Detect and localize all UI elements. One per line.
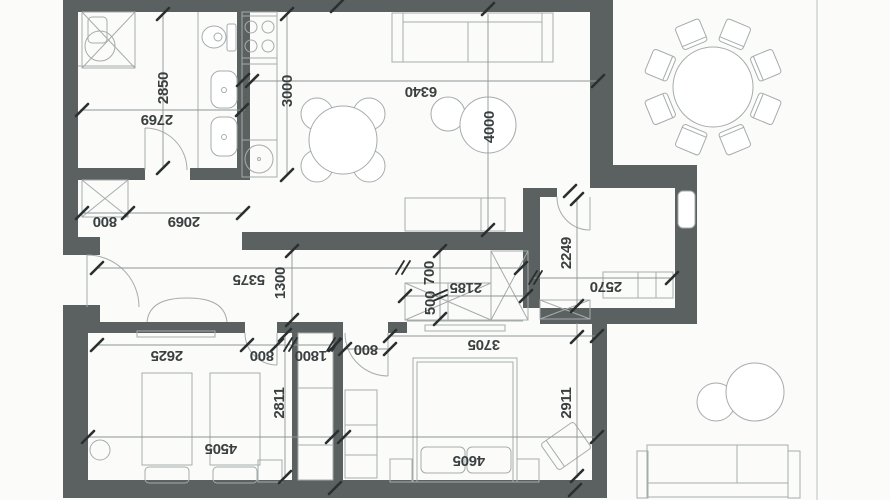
dimension-label-bath-height: 2850: [155, 72, 172, 104]
wall-bath-bottom-left: [63, 168, 145, 180]
washing-machine-icon: [82, 12, 135, 68]
patio-table-top: [673, 47, 753, 127]
coffee-tables: [697, 363, 784, 421]
patio-chair-icon: [644, 49, 676, 82]
dimension-label-wardrobe-width: 2185: [450, 279, 482, 296]
hallway: [82, 180, 528, 337]
radiator: [425, 325, 505, 331]
dimension-label-hall-wardrobe: 800: [93, 213, 117, 230]
wall-master-right: [592, 322, 607, 498]
toilet-icon: [202, 24, 236, 51]
wall-office-right: [675, 165, 697, 324]
floor-plan-drawing: 2850276930006340400080020695375130070050…: [0, 0, 890, 500]
dimension-label-office-width: 2570: [590, 278, 622, 295]
wall-bath-bottom-right: [190, 168, 250, 180]
door-entrance: [87, 255, 139, 307]
sofa: [392, 13, 553, 62]
dimension-label-office-depth: 2249: [558, 237, 575, 269]
patio-chair-icon: [750, 92, 782, 125]
bathroom-partition-line: [78, 12, 198, 168]
wall-radiator: [678, 191, 695, 228]
single-bed: [142, 373, 192, 483]
dimension-label-closet-width: 1800: [295, 347, 327, 364]
dimension-label-master-total-width: 4605: [453, 452, 485, 469]
patio-chair-icon: [675, 124, 708, 156]
closet-shelf-lines: [298, 388, 333, 445]
shoe-bench: [147, 298, 227, 322]
patio-chair-icon: [718, 18, 751, 50]
patio-sofa: [637, 445, 800, 498]
dimension-label-kids-wall: 2625: [151, 347, 183, 364]
dimension-label-living-width: 6340: [405, 83, 437, 100]
exterior: [637, 0, 817, 500]
dimension-label-kids-door: 800: [250, 347, 274, 364]
dimension-label-corridor-length: 5375: [233, 271, 265, 288]
wardrobe-column: [345, 390, 377, 478]
dimension-label-wardrobe-depth-1: 700: [421, 261, 438, 285]
hall-wardrobe-deep: [491, 251, 528, 320]
dimension-label-kitchen-depth: 3000: [279, 75, 296, 107]
dining-table-top: [309, 106, 377, 174]
dimension-label-bath-width: 2769: [141, 111, 173, 128]
dimension-label-kids-total-width: 4505: [205, 440, 237, 457]
dimension-label-kids-depth: 2811: [271, 387, 288, 418]
wall-master-top-stub: [388, 322, 407, 333]
round-armchair-group: [431, 97, 516, 153]
coffee-table-large: [726, 363, 784, 421]
patio-chair-icon: [675, 18, 708, 50]
dimension-label-master-door: 800: [354, 341, 378, 358]
single-bed: [210, 373, 260, 483]
wall-bath-kitchen-divider: [237, 0, 250, 180]
patio-chair-icon: [644, 92, 676, 125]
patio-chair-icon: [718, 124, 751, 156]
dimension-label-hall-opening: 2069: [168, 213, 200, 230]
bedside-cabinet: [258, 460, 282, 482]
tv-cabinet: [405, 198, 505, 231]
nightstand: [517, 459, 539, 482]
entry-wardrobe: [82, 180, 128, 217]
patio-dining-set: [644, 18, 782, 156]
patio-chair-icon: [750, 49, 782, 82]
wall-left-lower: [63, 327, 88, 482]
dining-table-with-chairs: [301, 98, 385, 182]
wall-entrance-jamb-top: [63, 237, 100, 255]
floor-plan-canvas: 2850276930006340400080020695375130070050…: [0, 0, 890, 500]
sink-icon: [211, 117, 237, 156]
sink-icon: [211, 71, 237, 108]
kids-bedroom: [90, 373, 282, 483]
dimension-label-master-depth: 2911: [558, 387, 575, 418]
wall-living-right: [590, 0, 613, 178]
dimension-label-wardrobe-depth-2: 500: [422, 291, 439, 315]
accent-chair: [540, 421, 591, 470]
living-room: [301, 13, 553, 231]
dimension-label-living-depth: 4000: [481, 111, 498, 143]
dimension-label-master-width: 3705: [468, 336, 500, 353]
wall-left-upper: [63, 0, 78, 255]
dimension-label-corridor-width: 1300: [272, 267, 289, 299]
nightstand: [390, 459, 412, 482]
stool: [90, 440, 110, 460]
wall-office-top-left: [523, 188, 557, 197]
